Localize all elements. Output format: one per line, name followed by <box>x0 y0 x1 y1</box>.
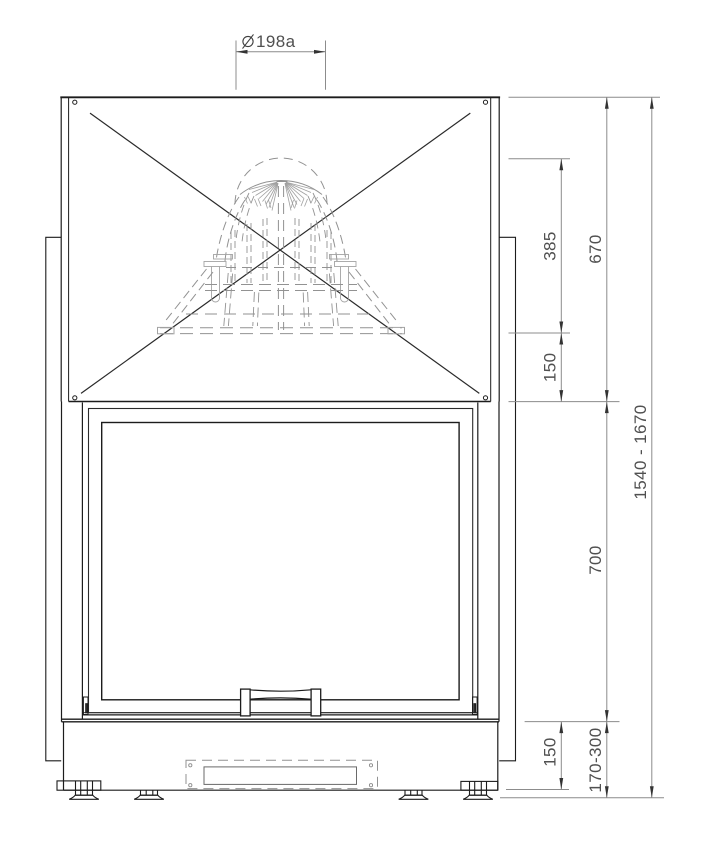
svg-text:150: 150 <box>541 737 560 767</box>
svg-text:1540 - 1670: 1540 - 1670 <box>631 404 650 499</box>
svg-text:170-300: 170-300 <box>586 727 605 792</box>
svg-text:198a: 198a <box>256 32 296 51</box>
svg-text:670: 670 <box>586 234 605 264</box>
svg-text:150: 150 <box>541 353 560 383</box>
svg-text:700: 700 <box>586 545 605 575</box>
svg-text:385: 385 <box>541 231 560 261</box>
